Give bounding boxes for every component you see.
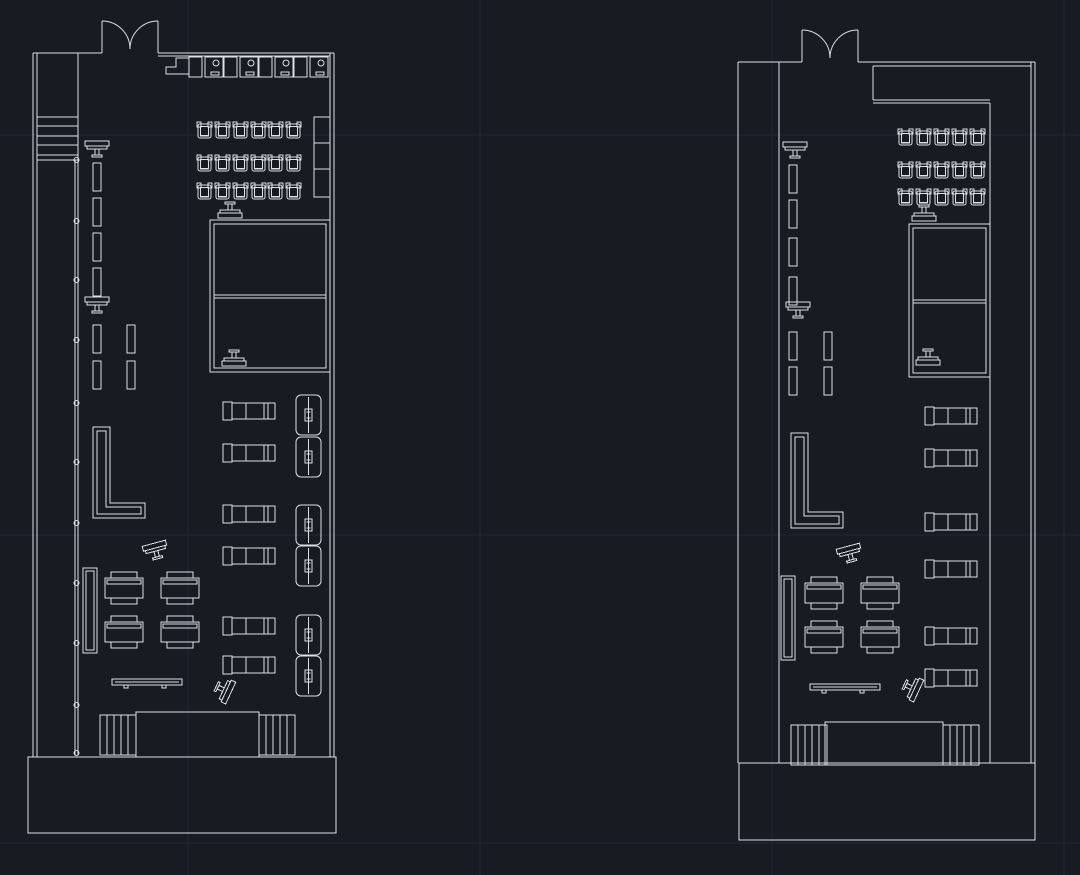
rect xyxy=(912,216,936,221)
chair xyxy=(197,122,212,138)
rect xyxy=(925,407,934,425)
rect xyxy=(807,585,841,589)
rect xyxy=(167,642,193,648)
rect xyxy=(219,188,227,197)
rect xyxy=(807,629,841,633)
rect xyxy=(255,188,263,197)
chair xyxy=(898,162,913,178)
rect xyxy=(943,725,979,765)
rect xyxy=(824,332,832,360)
rect xyxy=(225,202,235,204)
toilet-stall xyxy=(294,57,328,77)
booth-seat xyxy=(296,656,321,696)
l-counter-outer xyxy=(93,427,145,518)
dining-table xyxy=(805,577,843,609)
rect xyxy=(290,188,298,197)
rect xyxy=(107,624,141,628)
wall-sink xyxy=(786,302,810,318)
rect xyxy=(789,238,797,266)
rect xyxy=(956,194,964,203)
dining-table xyxy=(161,572,199,604)
dining-table xyxy=(105,572,143,604)
rect xyxy=(223,402,232,420)
display-stand xyxy=(127,361,135,389)
rect xyxy=(163,580,197,584)
door-swing-arc xyxy=(130,21,158,49)
rect xyxy=(163,624,197,628)
chair xyxy=(970,162,985,178)
rect xyxy=(205,57,223,77)
rect xyxy=(867,647,893,653)
rect xyxy=(93,361,101,389)
rect xyxy=(224,57,237,77)
rect xyxy=(909,678,924,702)
rect xyxy=(167,572,193,578)
tilted-sink xyxy=(211,675,236,704)
rect xyxy=(93,163,101,191)
display-stand xyxy=(93,268,101,296)
rect xyxy=(201,188,209,197)
display-stand xyxy=(93,233,101,261)
wall-sink xyxy=(85,141,109,157)
booth-seat xyxy=(296,615,321,655)
chair xyxy=(197,183,212,199)
rect xyxy=(93,198,101,226)
circle xyxy=(213,60,219,66)
massage-bed xyxy=(223,505,275,523)
rect xyxy=(790,156,800,158)
chair xyxy=(934,129,949,145)
rect xyxy=(811,577,837,583)
massage-bed xyxy=(925,560,977,578)
rect xyxy=(783,142,807,147)
rect xyxy=(316,72,324,75)
rect xyxy=(167,598,193,604)
rect xyxy=(920,167,928,176)
rect xyxy=(902,194,910,203)
rect xyxy=(272,160,280,169)
rect xyxy=(95,149,99,155)
rect xyxy=(902,167,910,176)
bench-vertical xyxy=(83,568,97,653)
rect xyxy=(934,408,977,424)
display-stand xyxy=(93,198,101,226)
massage-bed xyxy=(223,402,275,420)
massage-bed xyxy=(223,617,275,635)
rect xyxy=(925,449,934,467)
rect xyxy=(201,160,209,169)
tilted-sink xyxy=(899,673,924,702)
rect xyxy=(162,685,166,688)
left-floor-plan xyxy=(28,21,336,833)
rect xyxy=(919,205,929,207)
chair xyxy=(268,183,283,199)
chair xyxy=(233,155,248,171)
rect xyxy=(811,647,837,653)
rect xyxy=(796,310,800,316)
rect xyxy=(223,547,232,565)
rect xyxy=(290,127,298,136)
entry-platform xyxy=(28,757,336,833)
rect xyxy=(127,325,135,353)
booth-seat xyxy=(296,546,321,586)
chair xyxy=(251,183,266,199)
l-counter-inner xyxy=(795,437,839,524)
chair xyxy=(952,189,967,205)
rect xyxy=(824,367,832,395)
chair xyxy=(286,122,301,138)
rect xyxy=(934,514,977,530)
rect xyxy=(105,622,143,642)
display-stand xyxy=(789,277,797,305)
chair xyxy=(215,183,230,199)
chair xyxy=(898,129,913,145)
chair xyxy=(952,129,967,145)
rect xyxy=(232,657,275,673)
rect xyxy=(272,188,280,197)
massage-bed xyxy=(925,449,977,467)
shelf-unit xyxy=(314,117,330,197)
rect xyxy=(92,311,102,313)
bench-vertical-inner xyxy=(86,571,94,650)
display-stand xyxy=(789,200,797,228)
rect xyxy=(145,546,165,554)
rect xyxy=(95,305,99,311)
rect xyxy=(923,349,933,351)
rect xyxy=(229,350,239,352)
toilet-stall xyxy=(224,57,258,77)
room-outer-wall xyxy=(210,220,330,372)
chair xyxy=(286,183,301,199)
rect xyxy=(861,627,899,647)
l-counter-outer xyxy=(791,433,843,528)
wall-sink xyxy=(783,142,807,158)
rect xyxy=(272,127,280,136)
rect xyxy=(926,351,930,357)
chair xyxy=(215,155,230,171)
rect xyxy=(294,57,307,77)
rect xyxy=(93,268,101,296)
rect xyxy=(916,360,940,365)
rect xyxy=(805,627,843,647)
rect xyxy=(934,670,977,686)
rect xyxy=(223,656,232,674)
rect xyxy=(201,127,209,136)
chair xyxy=(898,189,913,205)
rect xyxy=(281,72,289,75)
rect xyxy=(124,685,128,688)
rect xyxy=(822,690,826,693)
rect xyxy=(974,194,982,203)
rect xyxy=(100,715,136,755)
display-stand xyxy=(789,367,797,395)
rect xyxy=(107,580,141,584)
rect xyxy=(811,603,837,609)
rect xyxy=(105,578,143,598)
rect xyxy=(839,549,859,557)
rect xyxy=(232,506,275,522)
wall-sink xyxy=(142,540,169,562)
rect xyxy=(861,583,899,603)
rect xyxy=(789,165,797,193)
display-stand xyxy=(93,325,101,353)
massage-bed xyxy=(925,669,977,687)
rect xyxy=(860,690,864,693)
rect xyxy=(232,548,275,564)
dining-table xyxy=(105,616,143,648)
rect xyxy=(811,621,837,627)
rect xyxy=(219,127,227,136)
dining-table xyxy=(805,621,843,653)
rect xyxy=(789,200,797,228)
toilet-stall xyxy=(189,57,223,77)
dining-table xyxy=(861,621,899,653)
dining-table xyxy=(861,577,899,609)
door-swing-arc xyxy=(830,30,858,58)
chair xyxy=(970,189,985,205)
toilet-stall xyxy=(259,57,293,77)
rect xyxy=(232,445,275,461)
rect xyxy=(92,155,102,157)
rect xyxy=(867,621,893,627)
rect xyxy=(237,188,245,197)
rect xyxy=(222,361,246,366)
stage-steps xyxy=(791,725,827,765)
rect xyxy=(863,629,897,633)
podium xyxy=(218,202,242,218)
rect xyxy=(167,616,193,622)
chair xyxy=(268,155,283,171)
wall-sink xyxy=(85,297,109,313)
rect xyxy=(791,725,827,765)
display-stand xyxy=(789,332,797,360)
massage-bed xyxy=(223,444,275,462)
stage-steps xyxy=(259,715,295,755)
rect xyxy=(111,598,137,604)
chair xyxy=(934,162,949,178)
rect xyxy=(789,277,797,305)
cad-canvas[interactable] xyxy=(0,0,1080,875)
dining-table xyxy=(161,616,199,648)
rect xyxy=(255,127,263,136)
counter-return xyxy=(166,58,189,74)
wall-sink xyxy=(836,543,863,565)
display-stand xyxy=(824,367,832,395)
rect xyxy=(218,213,242,218)
massage-bed xyxy=(223,656,275,674)
rect xyxy=(925,513,934,531)
massage-bed xyxy=(925,407,977,425)
rect xyxy=(789,367,797,395)
rect xyxy=(246,72,254,75)
stage-steps xyxy=(943,725,979,765)
rect xyxy=(847,559,857,564)
display-stand xyxy=(93,163,101,191)
rect xyxy=(111,572,137,578)
rect xyxy=(232,352,236,358)
circle xyxy=(248,60,254,66)
booth-seat xyxy=(296,505,321,545)
rect xyxy=(221,680,236,704)
rect xyxy=(189,57,202,77)
chair xyxy=(970,129,985,145)
rect xyxy=(259,715,295,755)
rect xyxy=(867,577,893,583)
rect xyxy=(974,167,982,176)
chair xyxy=(952,162,967,178)
rect xyxy=(153,556,163,561)
rect xyxy=(290,160,298,169)
cad-viewport xyxy=(0,0,1080,875)
rect xyxy=(934,561,977,577)
long-bench xyxy=(112,679,182,688)
chair xyxy=(934,189,949,205)
rect xyxy=(232,403,275,419)
rect xyxy=(93,233,101,261)
room-table xyxy=(916,349,940,365)
long-bench xyxy=(810,684,880,693)
door-swing-arc xyxy=(102,21,130,49)
chair xyxy=(251,122,266,138)
display-stand xyxy=(93,361,101,389)
chair xyxy=(215,122,230,138)
rect xyxy=(259,57,272,77)
rect xyxy=(223,444,232,462)
chair xyxy=(916,162,931,178)
room-table xyxy=(222,350,246,366)
rect xyxy=(934,628,977,644)
rect xyxy=(938,194,946,203)
rect xyxy=(232,618,275,634)
rect xyxy=(275,57,293,77)
rect xyxy=(789,332,797,360)
massage-bed xyxy=(223,547,275,565)
stage-steps xyxy=(100,715,136,755)
rect xyxy=(127,361,135,389)
rect xyxy=(161,622,199,642)
rect xyxy=(228,204,232,210)
rect xyxy=(925,627,934,645)
massage-bed xyxy=(925,627,977,645)
entry-platform xyxy=(739,763,1035,840)
rect xyxy=(111,616,137,622)
rect xyxy=(934,450,977,466)
rect xyxy=(161,578,199,598)
right-floor-plan xyxy=(738,30,1035,840)
rect xyxy=(111,642,137,648)
rect xyxy=(240,57,258,77)
booth-seat xyxy=(296,437,321,477)
podium xyxy=(912,205,936,221)
rect xyxy=(310,57,328,77)
rect xyxy=(925,669,934,687)
l-counter-inner xyxy=(97,431,141,514)
display-stand xyxy=(789,238,797,266)
rect xyxy=(223,505,232,523)
chair xyxy=(268,122,283,138)
rect xyxy=(85,297,109,302)
display-stand xyxy=(127,325,135,353)
display-stand xyxy=(789,165,797,193)
chair xyxy=(233,122,248,138)
rect xyxy=(956,167,964,176)
rect xyxy=(223,617,232,635)
rect xyxy=(863,585,897,589)
circle xyxy=(283,60,289,66)
rect xyxy=(938,167,946,176)
stage-platform xyxy=(136,712,259,757)
massage-bed xyxy=(925,513,977,531)
stage-platform xyxy=(825,722,943,765)
rect xyxy=(255,160,263,169)
rect xyxy=(793,316,803,318)
rect xyxy=(219,160,227,169)
rect xyxy=(867,603,893,609)
rect xyxy=(922,207,926,213)
rect xyxy=(93,325,101,353)
booth-seat xyxy=(296,395,321,435)
circle xyxy=(318,60,324,66)
rect xyxy=(925,560,934,578)
chair xyxy=(916,129,931,145)
chair xyxy=(916,189,931,205)
rect xyxy=(211,72,219,75)
rect xyxy=(920,194,928,203)
rect xyxy=(237,127,245,136)
rect xyxy=(793,150,797,156)
display-stand xyxy=(824,332,832,360)
chair xyxy=(251,155,266,171)
door-swing-arc xyxy=(802,30,830,58)
chair xyxy=(197,155,212,171)
bench-vertical xyxy=(781,576,795,660)
room-inner-wall xyxy=(214,224,326,368)
rect xyxy=(237,160,245,169)
rect xyxy=(805,583,843,603)
rect xyxy=(85,141,109,146)
chair xyxy=(233,183,248,199)
chair xyxy=(286,155,301,171)
bench-vertical-inner xyxy=(784,579,792,657)
